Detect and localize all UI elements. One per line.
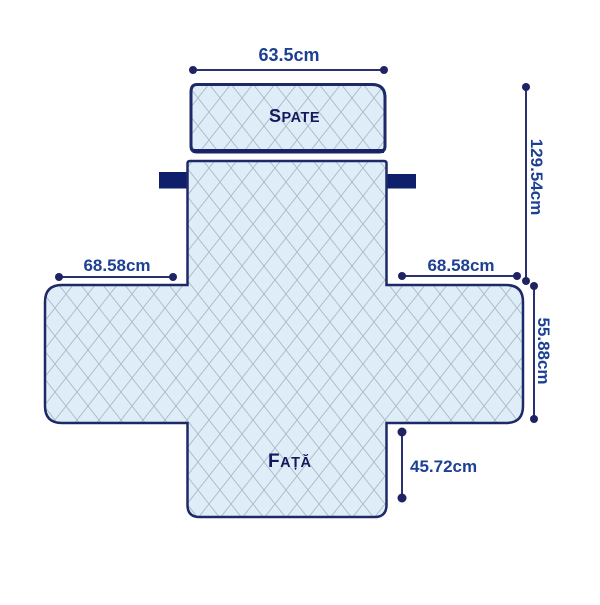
svg-text:FAȚĂ: FAȚĂ	[268, 451, 311, 472]
svg-text:68.58cm: 68.58cm	[427, 256, 494, 275]
svg-text:63.5cm: 63.5cm	[258, 45, 319, 65]
svg-text:68.58cm: 68.58cm	[83, 256, 150, 275]
svg-text:45.72cm: 45.72cm	[410, 457, 477, 476]
svg-text:55.88cm: 55.88cm	[534, 317, 553, 384]
svg-text:129.54cm: 129.54cm	[527, 139, 546, 216]
